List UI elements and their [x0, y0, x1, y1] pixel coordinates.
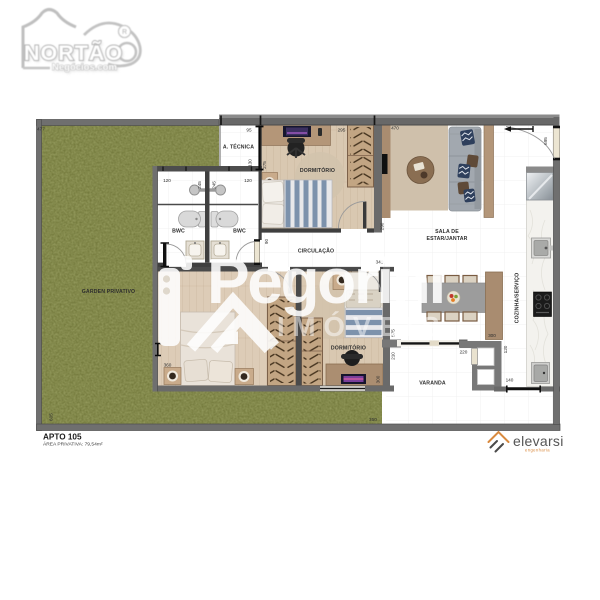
svg-text:360: 360 — [164, 363, 172, 368]
svg-text:220: 220 — [460, 350, 468, 355]
svg-text:477: 477 — [37, 127, 45, 132]
svg-text:BWC: BWC — [172, 229, 185, 235]
svg-text:GARDEN PRIVATIVO: GARDEN PRIVATIVO — [82, 289, 136, 295]
svg-text:290: 290 — [380, 222, 385, 230]
svg-text:ÁREA PRIVATIVA: 79,54m²: ÁREA PRIVATIVA: 79,54m² — [43, 441, 103, 448]
svg-text:BWC: BWC — [233, 229, 246, 235]
svg-text:300: 300 — [488, 333, 496, 338]
svg-text:DORMITÓRIO: DORMITÓRIO — [300, 166, 335, 174]
svg-text:140: 140 — [506, 378, 514, 383]
svg-text:SALA DE: SALA DE — [435, 229, 459, 235]
svg-text:R: R — [122, 29, 127, 36]
svg-text:Negócios.com: Negócios.com — [52, 62, 117, 73]
svg-text:470: 470 — [391, 126, 399, 131]
svg-text:210: 210 — [391, 352, 396, 360]
svg-text:245: 245 — [212, 181, 217, 189]
svg-text:350: 350 — [369, 417, 377, 422]
svg-text:ESTAR/JANTAR: ESTAR/JANTAR — [426, 236, 467, 242]
svg-text:VARANDA: VARANDA — [419, 381, 446, 387]
svg-text:95: 95 — [246, 128, 252, 133]
svg-text:245: 245 — [197, 181, 202, 189]
svg-text:engenharia: engenharia — [525, 448, 550, 453]
svg-text:295: 295 — [338, 128, 346, 133]
svg-text:Pegorini: Pegorini — [207, 245, 444, 317]
svg-text:DORMITÓRIO: DORMITÓRIO — [331, 344, 366, 352]
svg-text:130: 130 — [248, 159, 253, 167]
svg-text:APTO 105: APTO 105 — [43, 433, 82, 442]
svg-text:605: 605 — [49, 413, 54, 421]
svg-text:300: 300 — [376, 375, 381, 383]
svg-text:COZINHA/SERVIÇO: COZINHA/SERVIÇO — [515, 273, 521, 324]
svg-text:695: 695 — [543, 137, 548, 145]
svg-text:120: 120 — [163, 178, 171, 183]
svg-text:120: 120 — [503, 345, 508, 353]
svg-text:120: 120 — [244, 178, 252, 183]
svg-text:IMÓVEIS: IMÓVEIS — [277, 311, 448, 342]
svg-text:90: 90 — [264, 239, 269, 245]
svg-text:275: 275 — [262, 161, 267, 169]
svg-text:A. TÉCNICA: A. TÉCNICA — [223, 143, 254, 151]
